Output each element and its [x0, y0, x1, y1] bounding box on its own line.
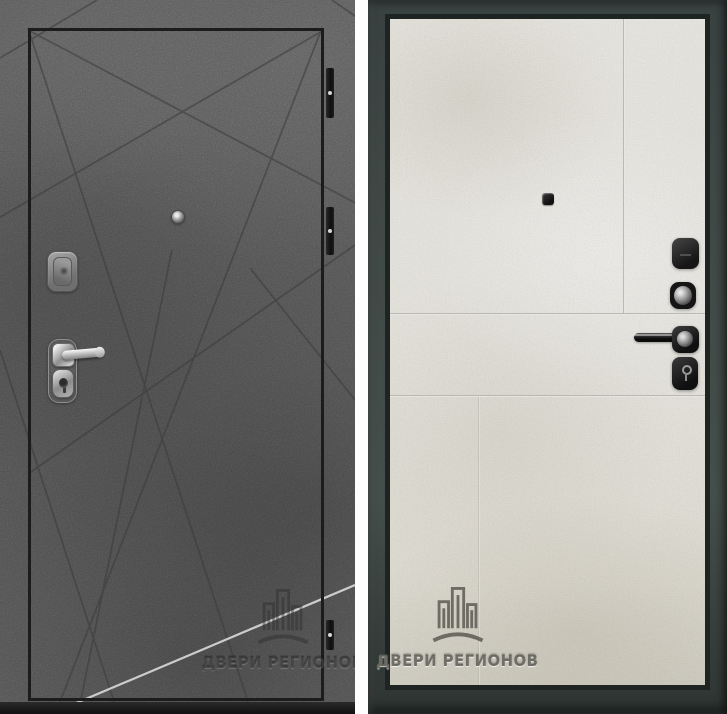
- upper-lock-escutcheon: [47, 251, 78, 292]
- key-cylinder-icon: [52, 369, 74, 398]
- door-interior-leaf: [390, 19, 705, 685]
- stone-grain-texture: [390, 19, 705, 685]
- key-cylinder-icon: [670, 282, 696, 309]
- thumbturn-escutcheon: [672, 238, 699, 269]
- panel-groove-horizontal-lower: [390, 395, 705, 397]
- panel-groove-horizontal-upper: [390, 313, 705, 315]
- keyhole-escutcheon: [672, 357, 698, 390]
- handle-rose: [672, 326, 699, 353]
- panel-groove-vertical-top: [623, 19, 625, 313]
- panel-groove-vertical-bottom: [478, 397, 480, 685]
- door-product-photo: ДВЕРИ РЕГИОНОВ: [0, 0, 727, 714]
- floor-shadow-strip: [0, 702, 355, 714]
- hinge-top-icon: [326, 68, 334, 118]
- peephole-icon: [171, 210, 185, 224]
- panel-divider: [355, 0, 368, 714]
- door-frame-rebate: [385, 14, 710, 690]
- door-interior-panel: ДВЕРИ РЕГИОНОВ: [368, 0, 727, 714]
- peephole-icon: [542, 193, 554, 205]
- hinge-bottom-icon: [326, 620, 334, 650]
- hinge-middle-icon: [326, 207, 334, 255]
- upper-lock-face: [53, 257, 72, 286]
- door-exterior-panel: ДВЕРИ РЕГИОНОВ: [0, 0, 355, 714]
